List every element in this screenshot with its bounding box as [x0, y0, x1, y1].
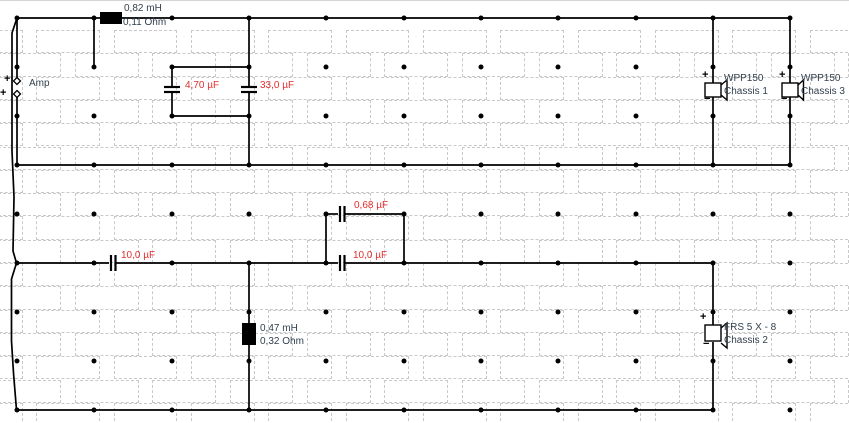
wire-cap-bank[interactable] — [172, 18, 249, 165]
speaker1-minus: − — [704, 94, 710, 105]
speaker2-name-label: Chassis 2 — [724, 335, 768, 346]
capacitor-330-label: 33,0 µF — [260, 80, 294, 91]
capacitor-100-mid-symbol[interactable] — [340, 255, 345, 271]
capacitor-068-symbol[interactable] — [340, 206, 345, 222]
capacitor-330-symbol[interactable] — [241, 87, 257, 92]
wire-left-feed[interactable] — [12, 18, 18, 410]
inductor-bottom-resistance-label: 0,32 Ohm — [260, 336, 304, 347]
speaker3-model-label: WPP150 — [801, 73, 840, 84]
speaker2-minus: − — [703, 339, 709, 350]
capacitor-100-mid-label: 10,0 µF — [353, 250, 387, 261]
capacitor-100-left-symbol[interactable] — [111, 255, 116, 271]
amp-plus-upper: + — [4, 74, 10, 85]
speaker2-model-label: FRS 5 X - 8 — [724, 322, 776, 333]
speaker3-minus: − — [781, 94, 787, 105]
capacitor-100-left-label: 10,0 µF — [121, 250, 155, 261]
amp-plus-lower: + — [0, 88, 6, 99]
speaker3-plus: + — [779, 70, 785, 81]
capacitor-470-label: 4,70 µF — [185, 80, 219, 91]
speaker2-plus: + — [700, 312, 706, 323]
speaker1-name-label: Chassis 1 — [724, 86, 768, 97]
speaker3-name-label: Chassis 3 — [801, 86, 845, 97]
wire-layer — [0, 1, 849, 423]
inductor-top-value-label: 0,82 mH — [124, 3, 162, 14]
amp-symbol[interactable] — [14, 78, 21, 98]
speaker1-plus: + — [702, 70, 708, 81]
schematic-canvas: 0,82 mH 0,11 Ohm + + Amp 4,70 µF 33,0 µF… — [0, 0, 849, 423]
inductor-top-resistance-label: 0,11 Ohm — [123, 17, 166, 28]
capacitor-470-symbol[interactable] — [164, 87, 180, 92]
capacitor-068-label: 0,68 µF — [354, 200, 388, 211]
inductor-top-symbol[interactable] — [100, 12, 122, 24]
inductor-bottom-symbol[interactable] — [242, 323, 256, 345]
amp-label: Amp — [29, 78, 50, 89]
inductor-bottom-value-label: 0,47 mH — [260, 323, 298, 334]
speaker1-model-label: WPP150 — [724, 73, 763, 84]
